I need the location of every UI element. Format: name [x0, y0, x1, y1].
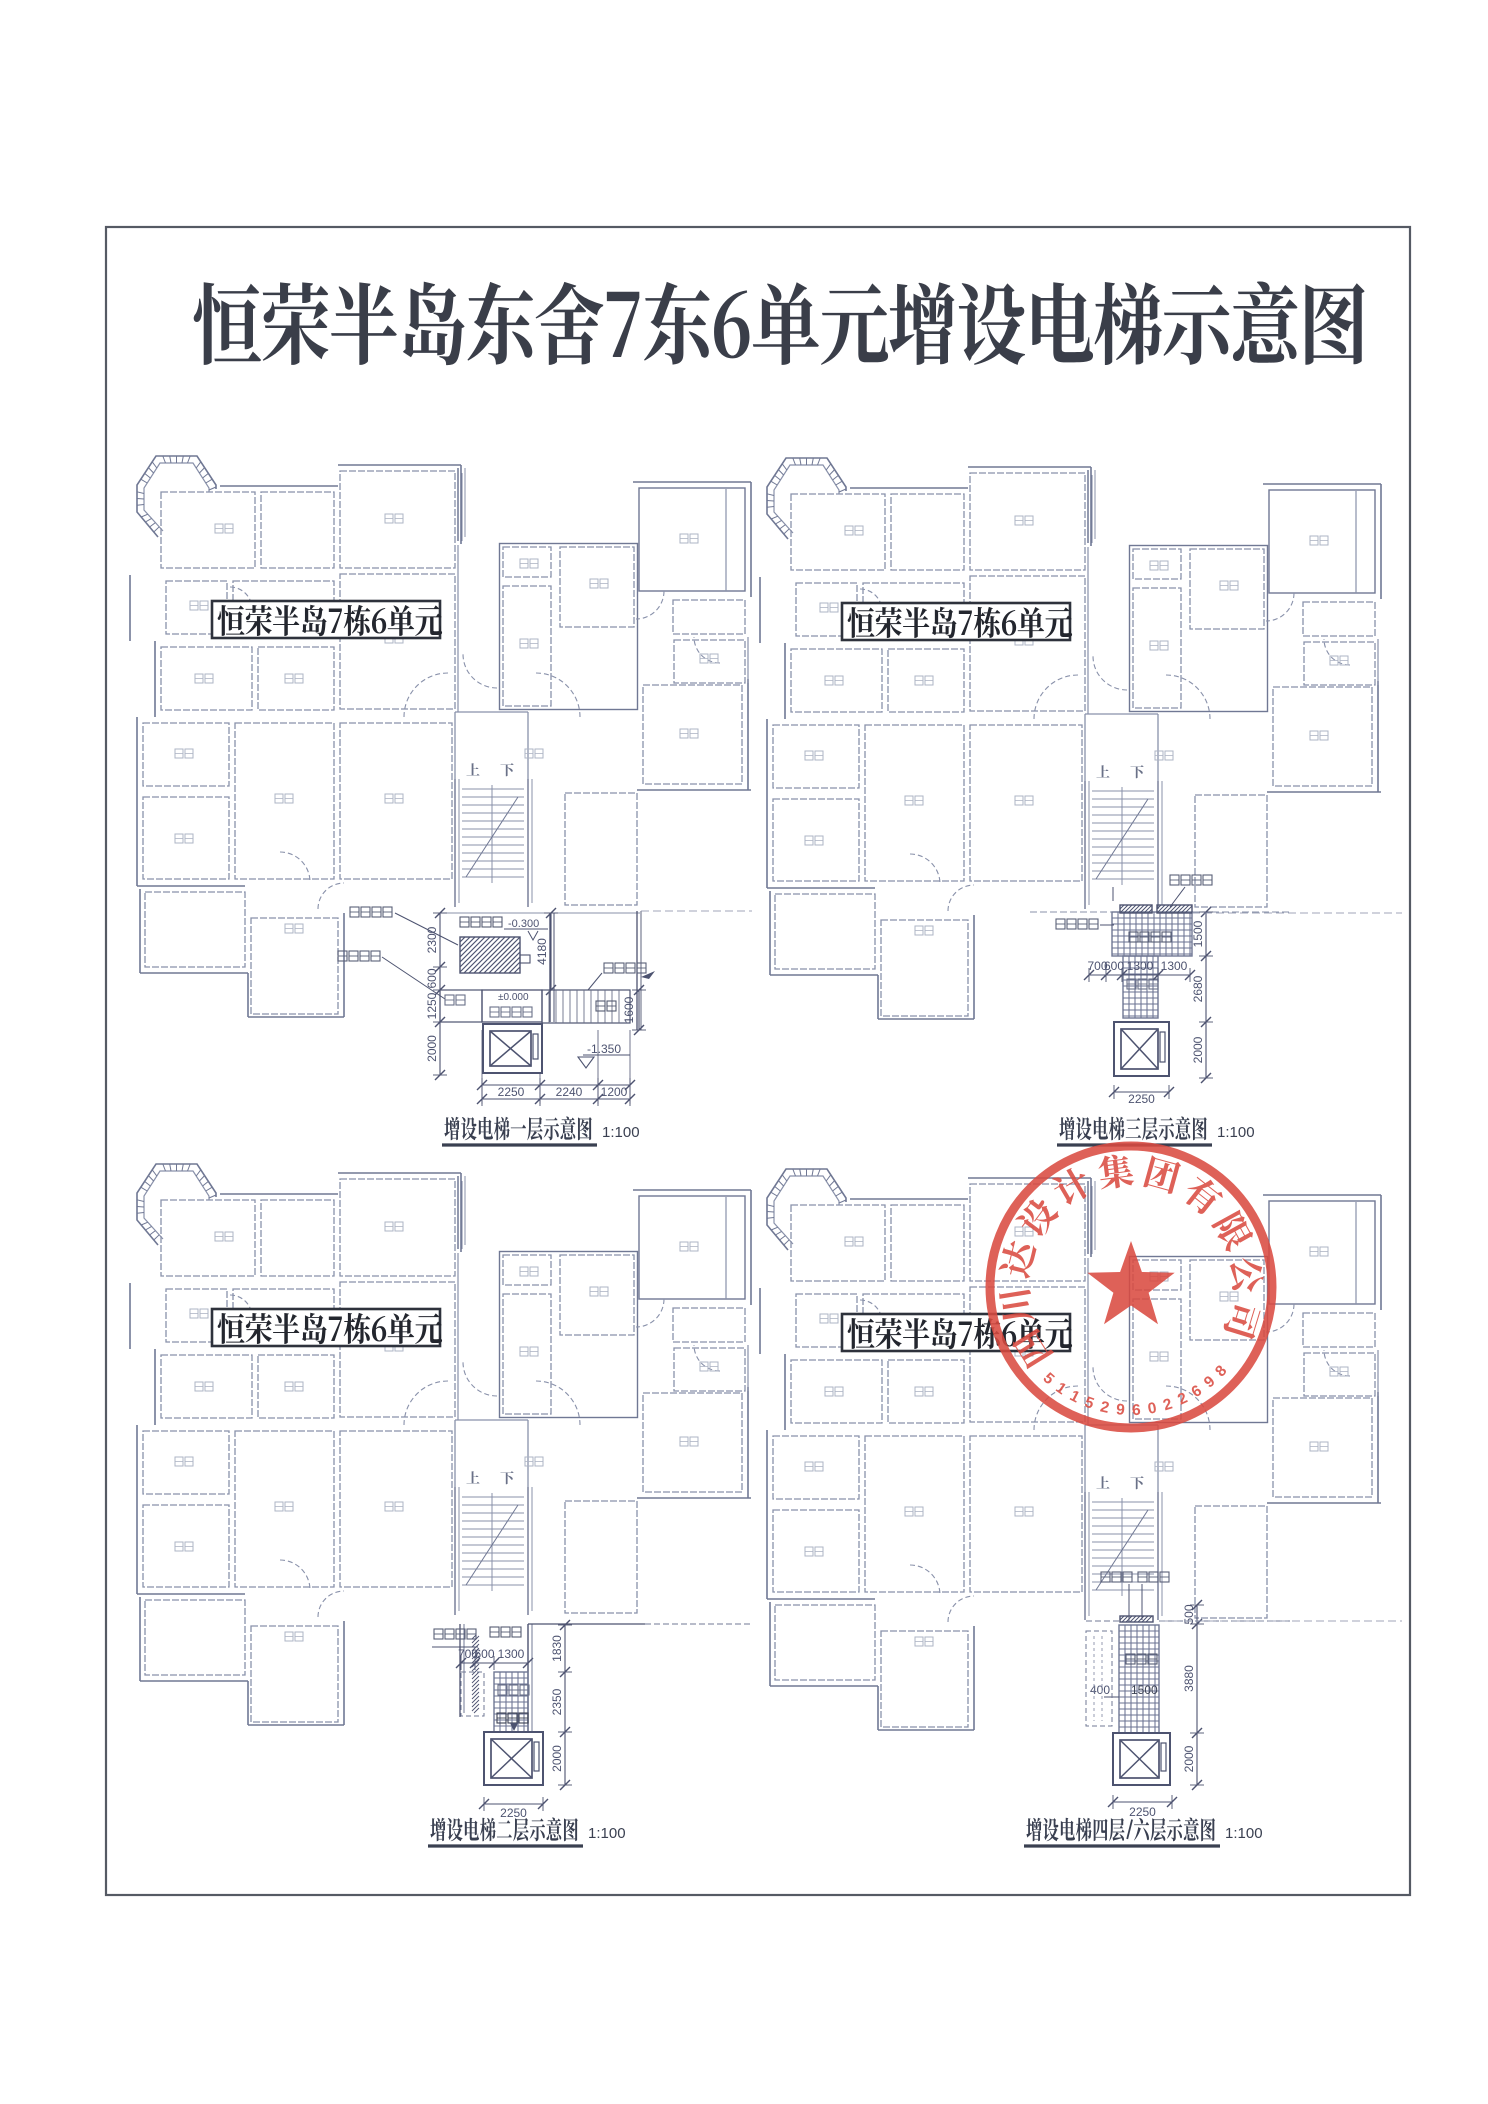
svg-text:1:100: 1:100 — [1225, 1825, 1263, 1842]
svg-text:1:100: 1:100 — [588, 1825, 626, 1842]
svg-text:2250: 2250 — [498, 1085, 525, 1099]
svg-text:-0.300: -0.300 — [508, 918, 539, 930]
svg-text:600: 600 — [425, 968, 439, 988]
svg-text:2240: 2240 — [556, 1085, 583, 1099]
svg-text:400: 400 — [1090, 1683, 1110, 1697]
svg-text:1830: 1830 — [550, 1635, 564, 1662]
svg-text:1600: 1600 — [622, 996, 636, 1023]
svg-text:4180: 4180 — [535, 938, 549, 965]
svg-text:1500: 1500 — [1131, 1683, 1158, 1697]
svg-text:2250: 2250 — [1128, 1092, 1155, 1106]
svg-text:2000: 2000 — [1182, 1745, 1196, 1772]
svg-text:2000: 2000 — [1191, 1036, 1205, 1063]
svg-text:2000: 2000 — [550, 1745, 564, 1772]
svg-text:-1.350: -1.350 — [587, 1042, 621, 1056]
svg-text:3880: 3880 — [1182, 1665, 1196, 1692]
svg-text:1300: 1300 — [498, 1647, 525, 1661]
svg-text:1250: 1250 — [425, 992, 439, 1019]
svg-text:2000: 2000 — [425, 1035, 439, 1062]
svg-text:2680: 2680 — [1191, 975, 1205, 1002]
svg-text:2250: 2250 — [1129, 1805, 1156, 1819]
svg-text:6: 6 — [1132, 1402, 1142, 1419]
svg-text:1300: 1300 — [1161, 959, 1188, 973]
svg-text:±0.000: ±0.000 — [498, 992, 529, 1003]
svg-text:2250: 2250 — [500, 1806, 527, 1820]
svg-text:2350: 2350 — [550, 1688, 564, 1715]
svg-text:1300: 1300 — [1127, 959, 1154, 973]
svg-text:600: 600 — [474, 1647, 494, 1661]
svg-text:600: 600 — [1104, 959, 1124, 973]
svg-text:1500: 1500 — [1191, 920, 1205, 947]
svg-text:1:100: 1:100 — [602, 1124, 640, 1141]
svg-text:2300: 2300 — [425, 926, 439, 953]
svg-text:1200: 1200 — [601, 1085, 628, 1099]
svg-text:1:100: 1:100 — [1217, 1124, 1255, 1141]
